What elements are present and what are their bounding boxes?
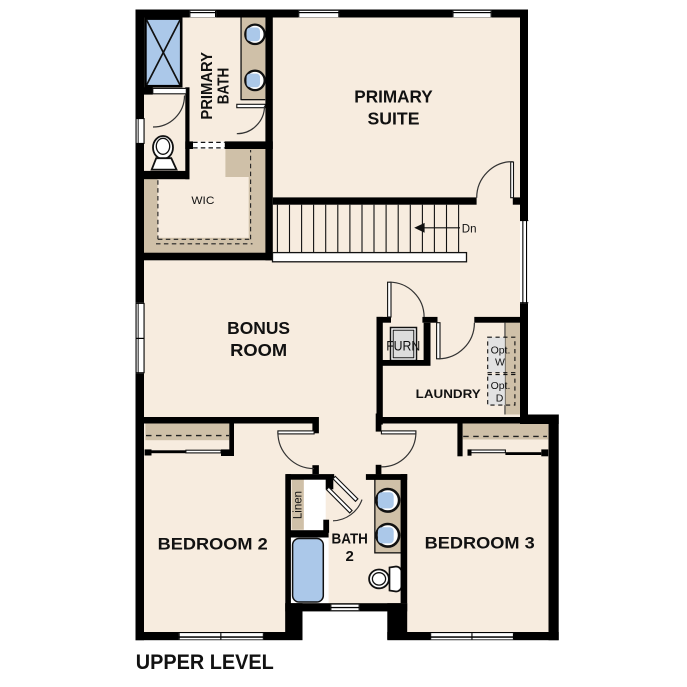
svg-text:2: 2 — [346, 548, 354, 565]
svg-text:PRIMARY: PRIMARY — [199, 52, 216, 120]
svg-text:ROOM: ROOM — [230, 340, 287, 360]
svg-text:UPPER LEVEL: UPPER LEVEL — [136, 650, 274, 674]
svg-text:BONUS: BONUS — [227, 318, 290, 338]
svg-text:SUITE: SUITE — [368, 109, 420, 129]
svg-text:D: D — [496, 393, 504, 405]
svg-text:WIC: WIC — [191, 195, 214, 207]
svg-text:BEDROOM 3: BEDROOM 3 — [425, 534, 535, 553]
svg-text:BATH: BATH — [332, 530, 368, 547]
svg-text:LAUNDRY: LAUNDRY — [416, 387, 481, 401]
svg-text:BATH: BATH — [216, 68, 233, 105]
svg-text:PRIMARY: PRIMARY — [354, 87, 433, 107]
svg-text:Linen: Linen — [292, 491, 304, 519]
svg-text:FURN: FURN — [386, 339, 420, 354]
svg-text:Opt.: Opt. — [491, 345, 511, 357]
svg-text:BEDROOM 2: BEDROOM 2 — [158, 534, 268, 553]
svg-text:W: W — [495, 357, 505, 369]
svg-text:Dn: Dn — [462, 223, 477, 235]
svg-text:Opt.: Opt. — [491, 380, 511, 392]
